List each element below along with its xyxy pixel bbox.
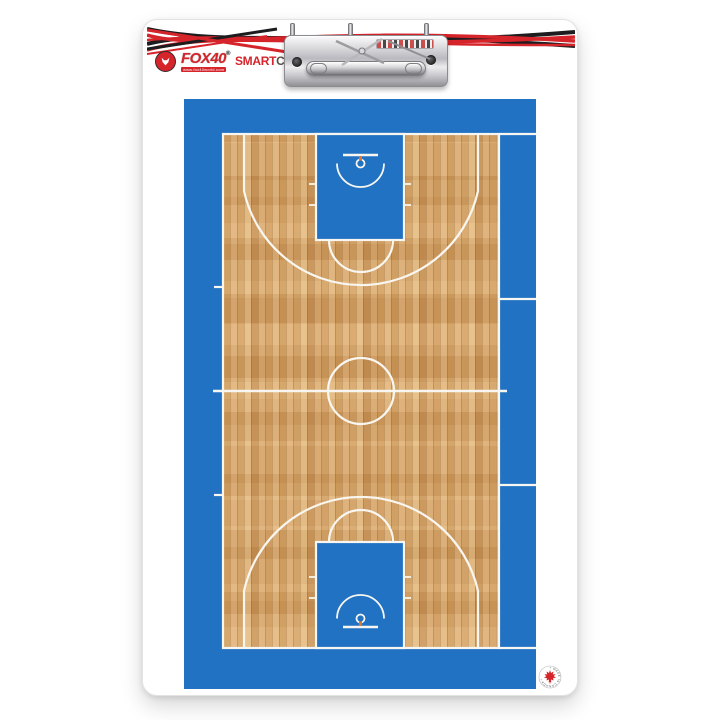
court-line-markings bbox=[184, 99, 536, 689]
fox40-wordmark-block: FOX40® www.fox40world.com bbox=[181, 51, 230, 72]
metal-clip bbox=[284, 23, 448, 91]
photo-background: FOX40® www.fox40world.com SMARTCOACH™ bbox=[0, 0, 720, 720]
fox-head-glyph bbox=[159, 55, 172, 68]
clip-spring-wires bbox=[284, 23, 448, 91]
fox-face-shape bbox=[162, 58, 170, 66]
basketball-court bbox=[184, 99, 536, 689]
spring-joint bbox=[359, 48, 365, 54]
top-free-throw-arc bbox=[329, 240, 393, 272]
registered-mark: ® bbox=[226, 51, 230, 57]
smart-text: SMART bbox=[235, 54, 276, 68]
bottom-free-throw-arc bbox=[329, 510, 393, 542]
maple-leaf-stem bbox=[550, 681, 551, 683]
fox-head-icon bbox=[155, 51, 176, 72]
made-in-canada-badge: • MADE IN CANADA • bbox=[538, 665, 562, 689]
coaching-clipboard: FOX40® www.fox40world.com SMARTCOACH™ bbox=[142, 19, 578, 696]
spring-wire bbox=[388, 41, 430, 59]
fox40-text: FOX40 bbox=[181, 50, 226, 67]
fox40-wordmark: FOX40® bbox=[181, 51, 230, 66]
brand-website: www.fox40world.com bbox=[181, 67, 226, 72]
